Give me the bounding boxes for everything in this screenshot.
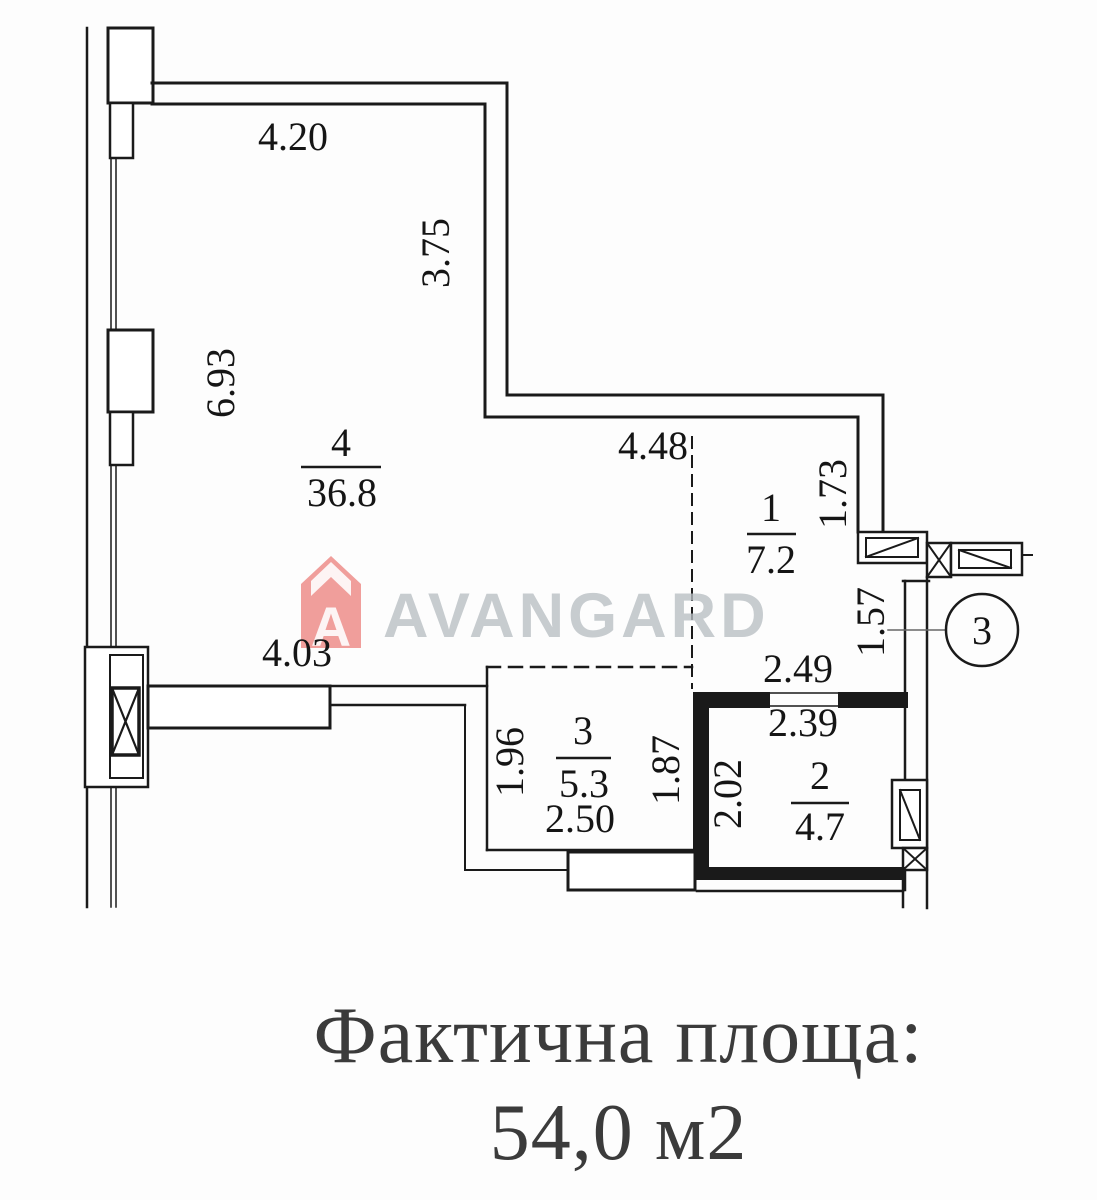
dim-6.93: 6.93 [198,348,243,418]
room-label-4: 4 36.8 [301,420,381,515]
caption-line2: 54,0 м2 [140,1085,1097,1182]
room3-area: 5.3 [559,761,609,806]
room1-number: 1 [761,485,781,530]
room4-area: 36.8 [307,470,377,515]
room-label-1: 1 7.2 [746,485,796,582]
shaft-x-icon [927,543,951,577]
caption-line1: Фактична площа: [140,988,1097,1085]
avangard-watermark: A AVANGARD [301,556,770,658]
dim-4.03: 4.03 [262,630,332,675]
balcony-door-block [568,852,695,890]
dim-2.02: 2.02 [705,759,750,829]
dim-2.39: 2.39 [768,700,838,745]
room-label-2: 2 4.7 [791,753,849,849]
room1-area: 7.2 [746,537,796,582]
dim-1.96: 1.96 [487,727,532,797]
room2-area: 4.7 [795,804,845,849]
room-label-3: 3 5.3 [556,708,611,806]
dim-4.20: 4.20 [258,114,328,159]
dim-1.57: 1.57 [848,587,893,657]
dim-2.49: 2.49 [763,646,833,691]
wall-pier [108,28,153,103]
dim-1.73: 1.73 [810,459,855,529]
wall-pier [110,412,133,465]
callout-3 [888,594,1018,666]
avangard-brand-text: AVANGARD [383,581,770,651]
dim-1.87: 1.87 [643,735,688,805]
area-caption: Фактична площа: 54,0 м2 [140,988,1097,1182]
wall-pier [110,103,133,158]
dim-4.48: 4.48 [618,423,688,468]
interior-wall [148,686,487,728]
floor-plan-screenshot: A AVANGARD 4.20 3.75 6.93 4.48 1.73 4.03… [0,0,1097,1200]
window-icon [951,543,1032,575]
room2-number: 2 [810,753,830,798]
room4-number: 4 [331,420,351,465]
dimension-labels: 4.20 3.75 6.93 4.48 1.73 4.03 1.57 2.49 … [198,114,893,841]
floor-plan-drawing: A AVANGARD 4.20 3.75 6.93 4.48 1.73 4.03… [0,0,1097,970]
dim-3.75: 3.75 [413,218,458,288]
room2-vent-shaft-icon [892,780,927,870]
callout-number: 3 [972,608,992,653]
wall-pier [108,330,153,412]
window-icon [858,532,927,563]
left-vent-shaft-icon [85,647,148,787]
room3-number: 3 [573,708,593,753]
